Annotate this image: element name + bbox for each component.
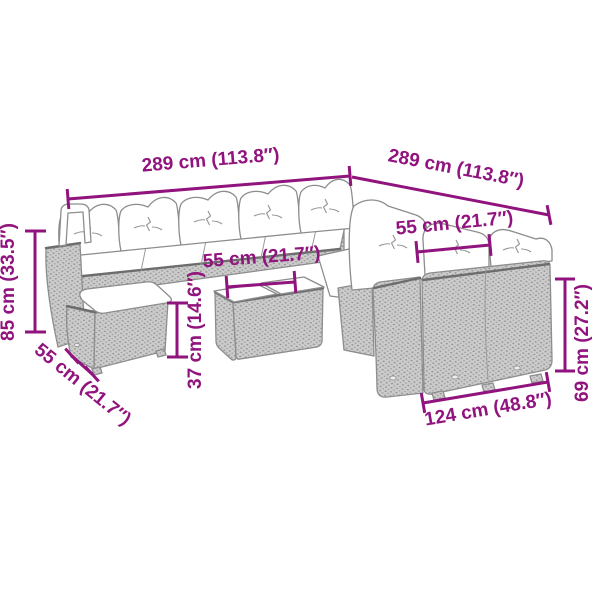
dimension-back-width-label: 289 cm (113.8″) xyxy=(141,144,280,176)
back-cushion-4 xyxy=(239,185,301,239)
dimension-tick xyxy=(67,189,69,209)
back-cushion-5 xyxy=(299,179,355,233)
wing-side-panel xyxy=(373,277,423,397)
back-cushion-2 xyxy=(119,197,181,251)
dimension-tick xyxy=(416,241,418,263)
dimension-back-height-label: 85 cm (33.5″) xyxy=(0,223,19,341)
sofa-set-dimension-diagram: 289 cm (113.8″) 289 cm (113.8″) 55 cm (2… xyxy=(0,0,600,600)
dimension-side-width-label: 289 cm (113.8″) xyxy=(386,145,525,192)
weave-hole xyxy=(452,375,458,379)
footstool-left-face xyxy=(67,307,95,369)
weave-hole xyxy=(75,343,80,346)
footstool xyxy=(67,282,172,375)
weave-hole xyxy=(514,366,520,370)
front-sofa-back-panel xyxy=(422,261,552,395)
corner-base xyxy=(338,282,374,356)
product-dimension-image: 289 cm (113.8″) 289 cm (113.8″) 55 cm (2… xyxy=(0,0,600,600)
dimension-seat-height: 37 cm (14.6″) xyxy=(167,271,206,389)
dimension-tick xyxy=(349,166,351,186)
dimension-tick xyxy=(547,205,551,225)
coffee-table xyxy=(214,277,324,360)
dimension-sofa-height: 69 cm (27.2″) xyxy=(555,279,593,402)
weave-hole xyxy=(390,376,396,380)
dimension-sofa-height-label: 69 cm (27.2″) xyxy=(572,284,593,402)
dimension-seat-height-label: 37 cm (14.6″) xyxy=(185,271,206,389)
dimension-tick xyxy=(489,234,491,256)
dimension-tick xyxy=(294,271,296,293)
back-cushion-3 xyxy=(179,191,241,245)
dimension-tick xyxy=(226,276,228,298)
dimension-back-height: 85 cm (33.5″) xyxy=(0,223,46,341)
